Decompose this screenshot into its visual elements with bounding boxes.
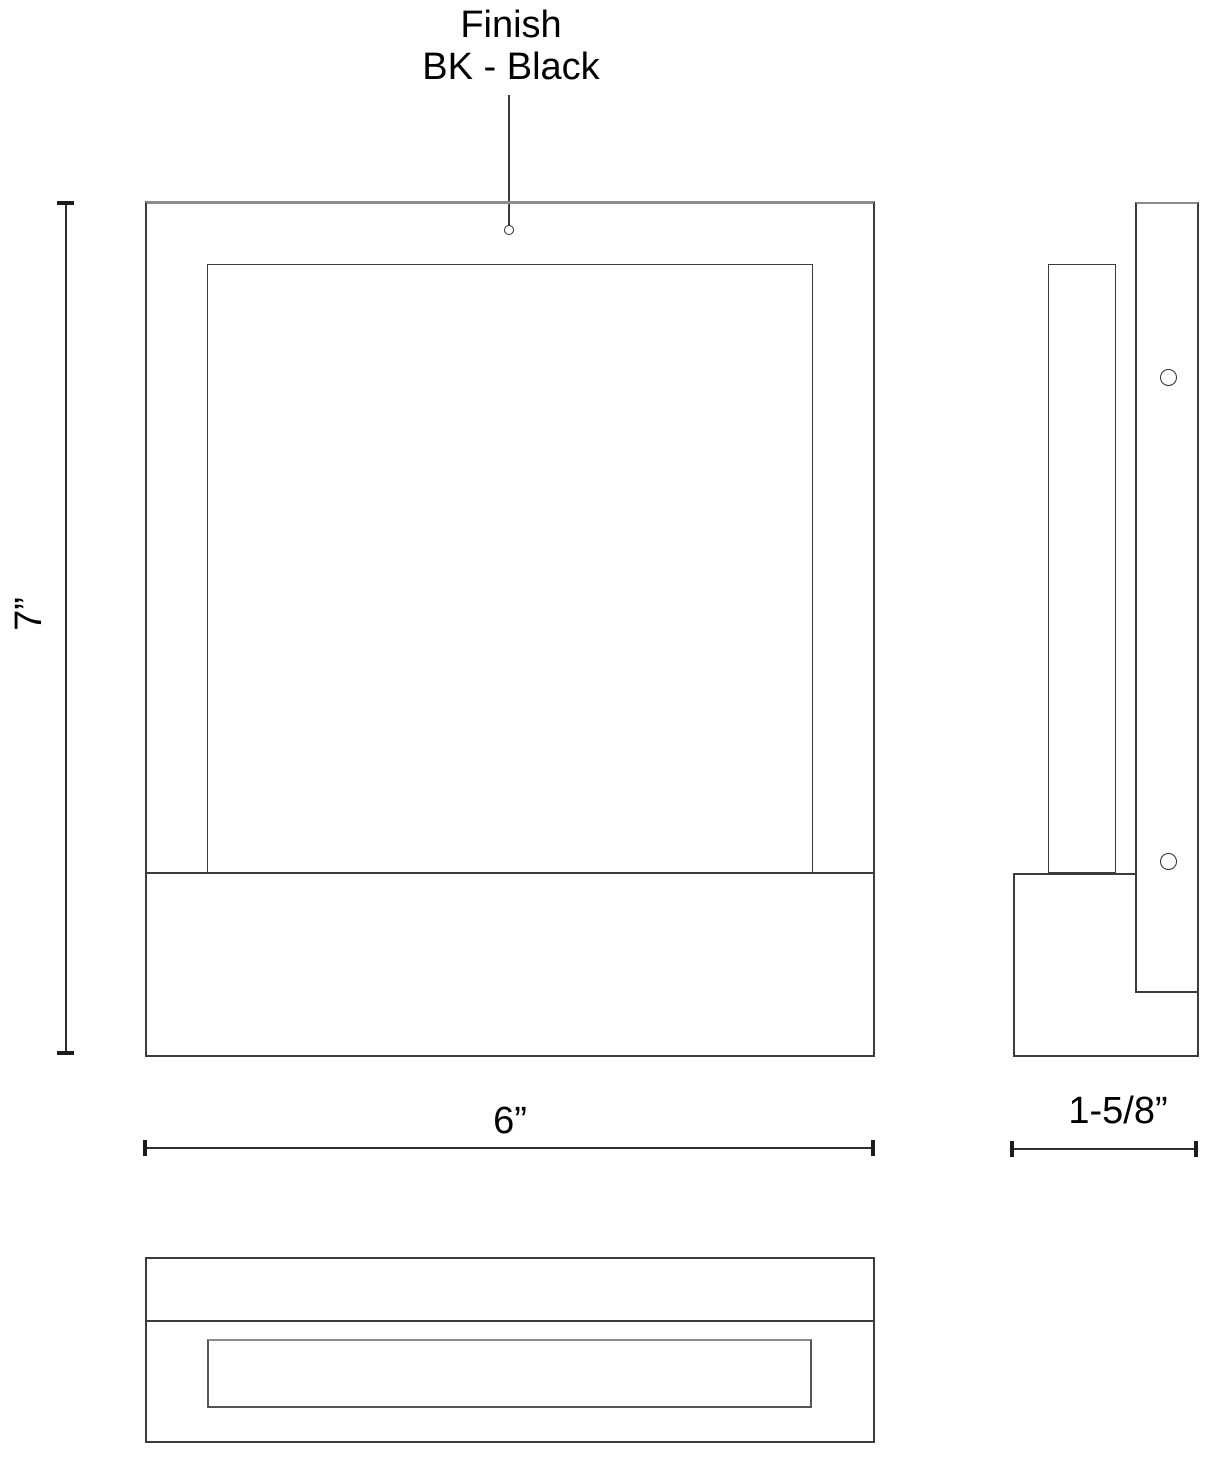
width-dimension-line	[145, 1147, 874, 1149]
drawing-canvas: Finish BK - Black 7”	[0, 0, 1216, 1461]
side-view-bottom-block-bottom-edge	[1013, 1055, 1199, 1057]
side-view-backplate-outline	[1135, 202, 1199, 993]
mounting-hole-bottom-icon	[1160, 853, 1177, 870]
height-dimension-bottom-tick	[57, 1051, 74, 1055]
side-view-bottom-block-right-edge	[1197, 991, 1199, 1057]
depth-dimension-label: 1-5/8”	[993, 1090, 1216, 1133]
side-view-bottom-block-top-edge	[1013, 873, 1135, 875]
bottom-view-plate-line	[147, 1320, 873, 1322]
side-view-body-outline	[1048, 264, 1116, 873]
height-dimension-top-tick	[57, 201, 74, 205]
width-dimension-label: 6”	[410, 1100, 610, 1143]
bottom-view-lens-outline	[207, 1339, 812, 1408]
finish-callout-title: Finish	[336, 4, 686, 47]
depth-dimension-right-tick	[1194, 1141, 1198, 1157]
finish-callout-value: BK - Black	[336, 46, 686, 89]
height-dimension-label: 7”	[8, 527, 52, 701]
side-view-bottom-block-left-edge	[1013, 873, 1015, 1057]
depth-dimension-left-tick	[1010, 1141, 1014, 1157]
front-view-lens-outline	[207, 264, 813, 873]
mounting-hole-top-icon	[1160, 369, 1177, 386]
width-dimension-right-tick	[871, 1140, 875, 1156]
front-view-bottom-band-line	[147, 872, 873, 874]
depth-dimension-line	[1012, 1148, 1198, 1150]
height-dimension-line	[65, 202, 67, 1054]
width-dimension-left-tick	[143, 1140, 147, 1156]
